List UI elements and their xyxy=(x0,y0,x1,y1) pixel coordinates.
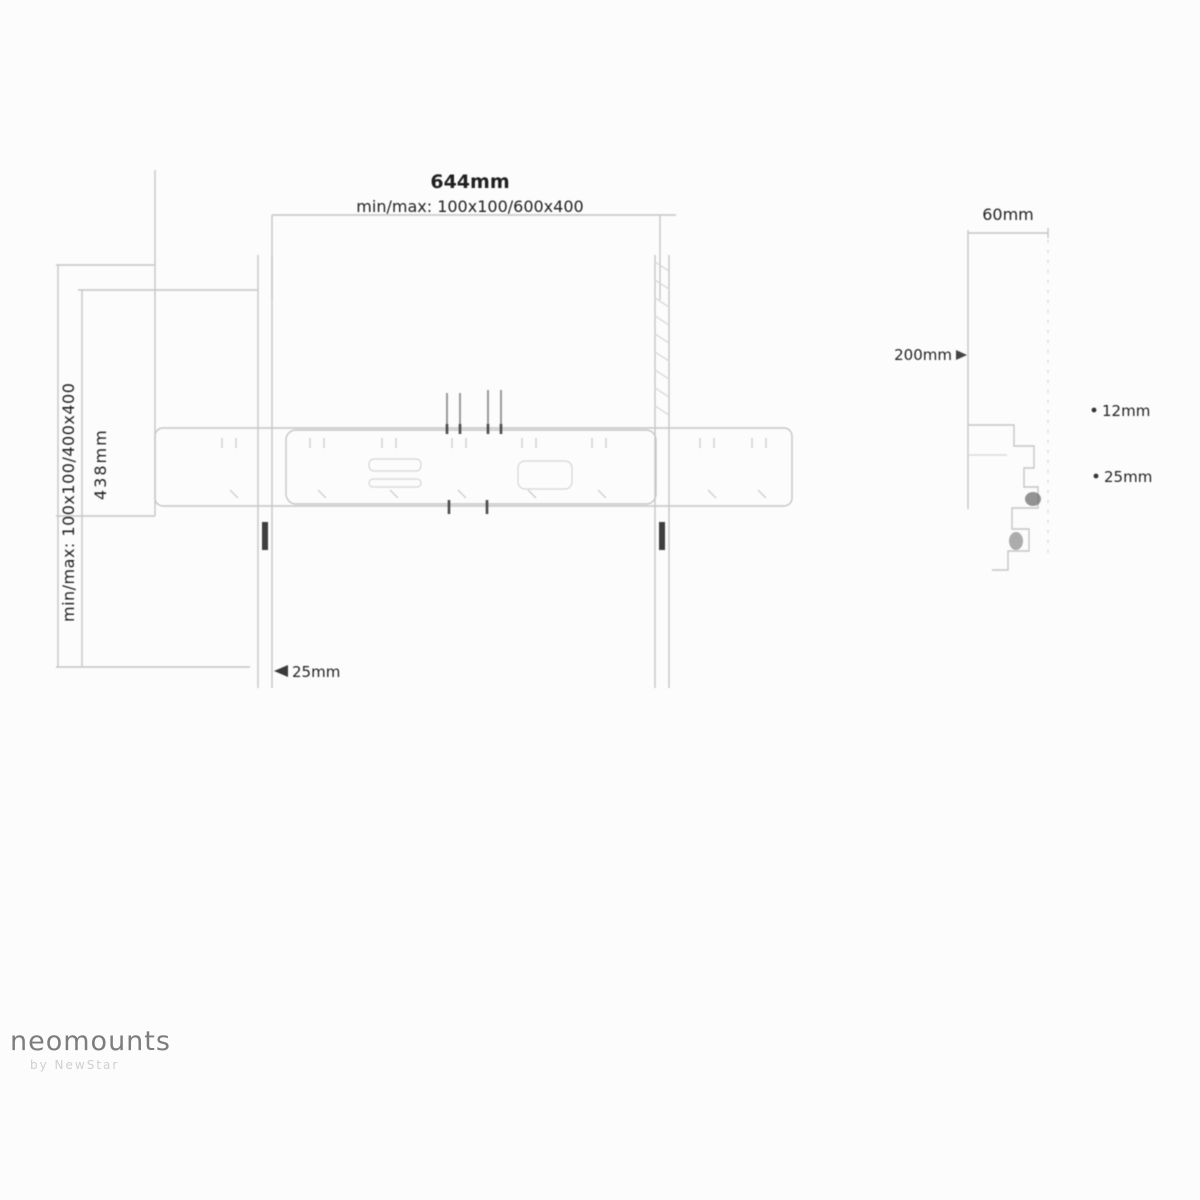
rail-outline xyxy=(155,428,792,506)
center-screw-ticks xyxy=(447,390,501,428)
technical-drawing-page: 644mm min/max: 100x100/600x400 min/max: … xyxy=(0,0,1200,1200)
gap-upper-arrow-dot-icon xyxy=(1092,408,1097,413)
side-view: 60mm 200mm 12mm 25mm xyxy=(894,205,1152,570)
gap-lower-arrow-dot-icon xyxy=(1094,474,1099,479)
rail-thickness-label: 25mm xyxy=(292,663,340,681)
rail-slot-left xyxy=(369,459,421,471)
hook-gap-lower-label: 25mm xyxy=(1104,468,1152,486)
brand-logo: neomounts xyxy=(10,1028,171,1055)
brand-tagline: by NewStar xyxy=(30,1058,119,1072)
wall-offset-arrow-icon xyxy=(956,350,967,360)
rail-slot-right xyxy=(518,461,572,489)
depth-label: 60mm xyxy=(982,205,1034,224)
wall-mount-dimension-drawing: 644mm min/max: 100x100/600x400 min/max: … xyxy=(0,0,1200,1200)
front-view: 644mm min/max: 100x100/600x400 min/max: … xyxy=(56,170,792,688)
thickness-arrow-icon xyxy=(274,665,288,677)
rail-bottom-hole-ticks xyxy=(230,490,766,498)
vesa-vertical-range-label: min/max: 100x100/400x400 xyxy=(59,383,78,622)
wall-offset-label: 200mm xyxy=(894,346,952,364)
right-bracket-hatch xyxy=(655,262,669,415)
overall-width-label: 644mm xyxy=(430,171,509,193)
hook-dark-detail-upper xyxy=(1025,492,1041,506)
rail-slot-left-lower xyxy=(369,479,421,487)
rail-top-hole-ticks xyxy=(222,438,766,448)
hook-dark-detail-lower xyxy=(1009,532,1023,550)
overall-height-label: 438mm xyxy=(91,428,110,500)
hook-gap-upper-label: 12mm xyxy=(1102,402,1150,420)
vesa-horizontal-range-label: min/max: 100x100/600x400 xyxy=(356,197,583,216)
center-screw-dark-ticks xyxy=(447,424,501,514)
